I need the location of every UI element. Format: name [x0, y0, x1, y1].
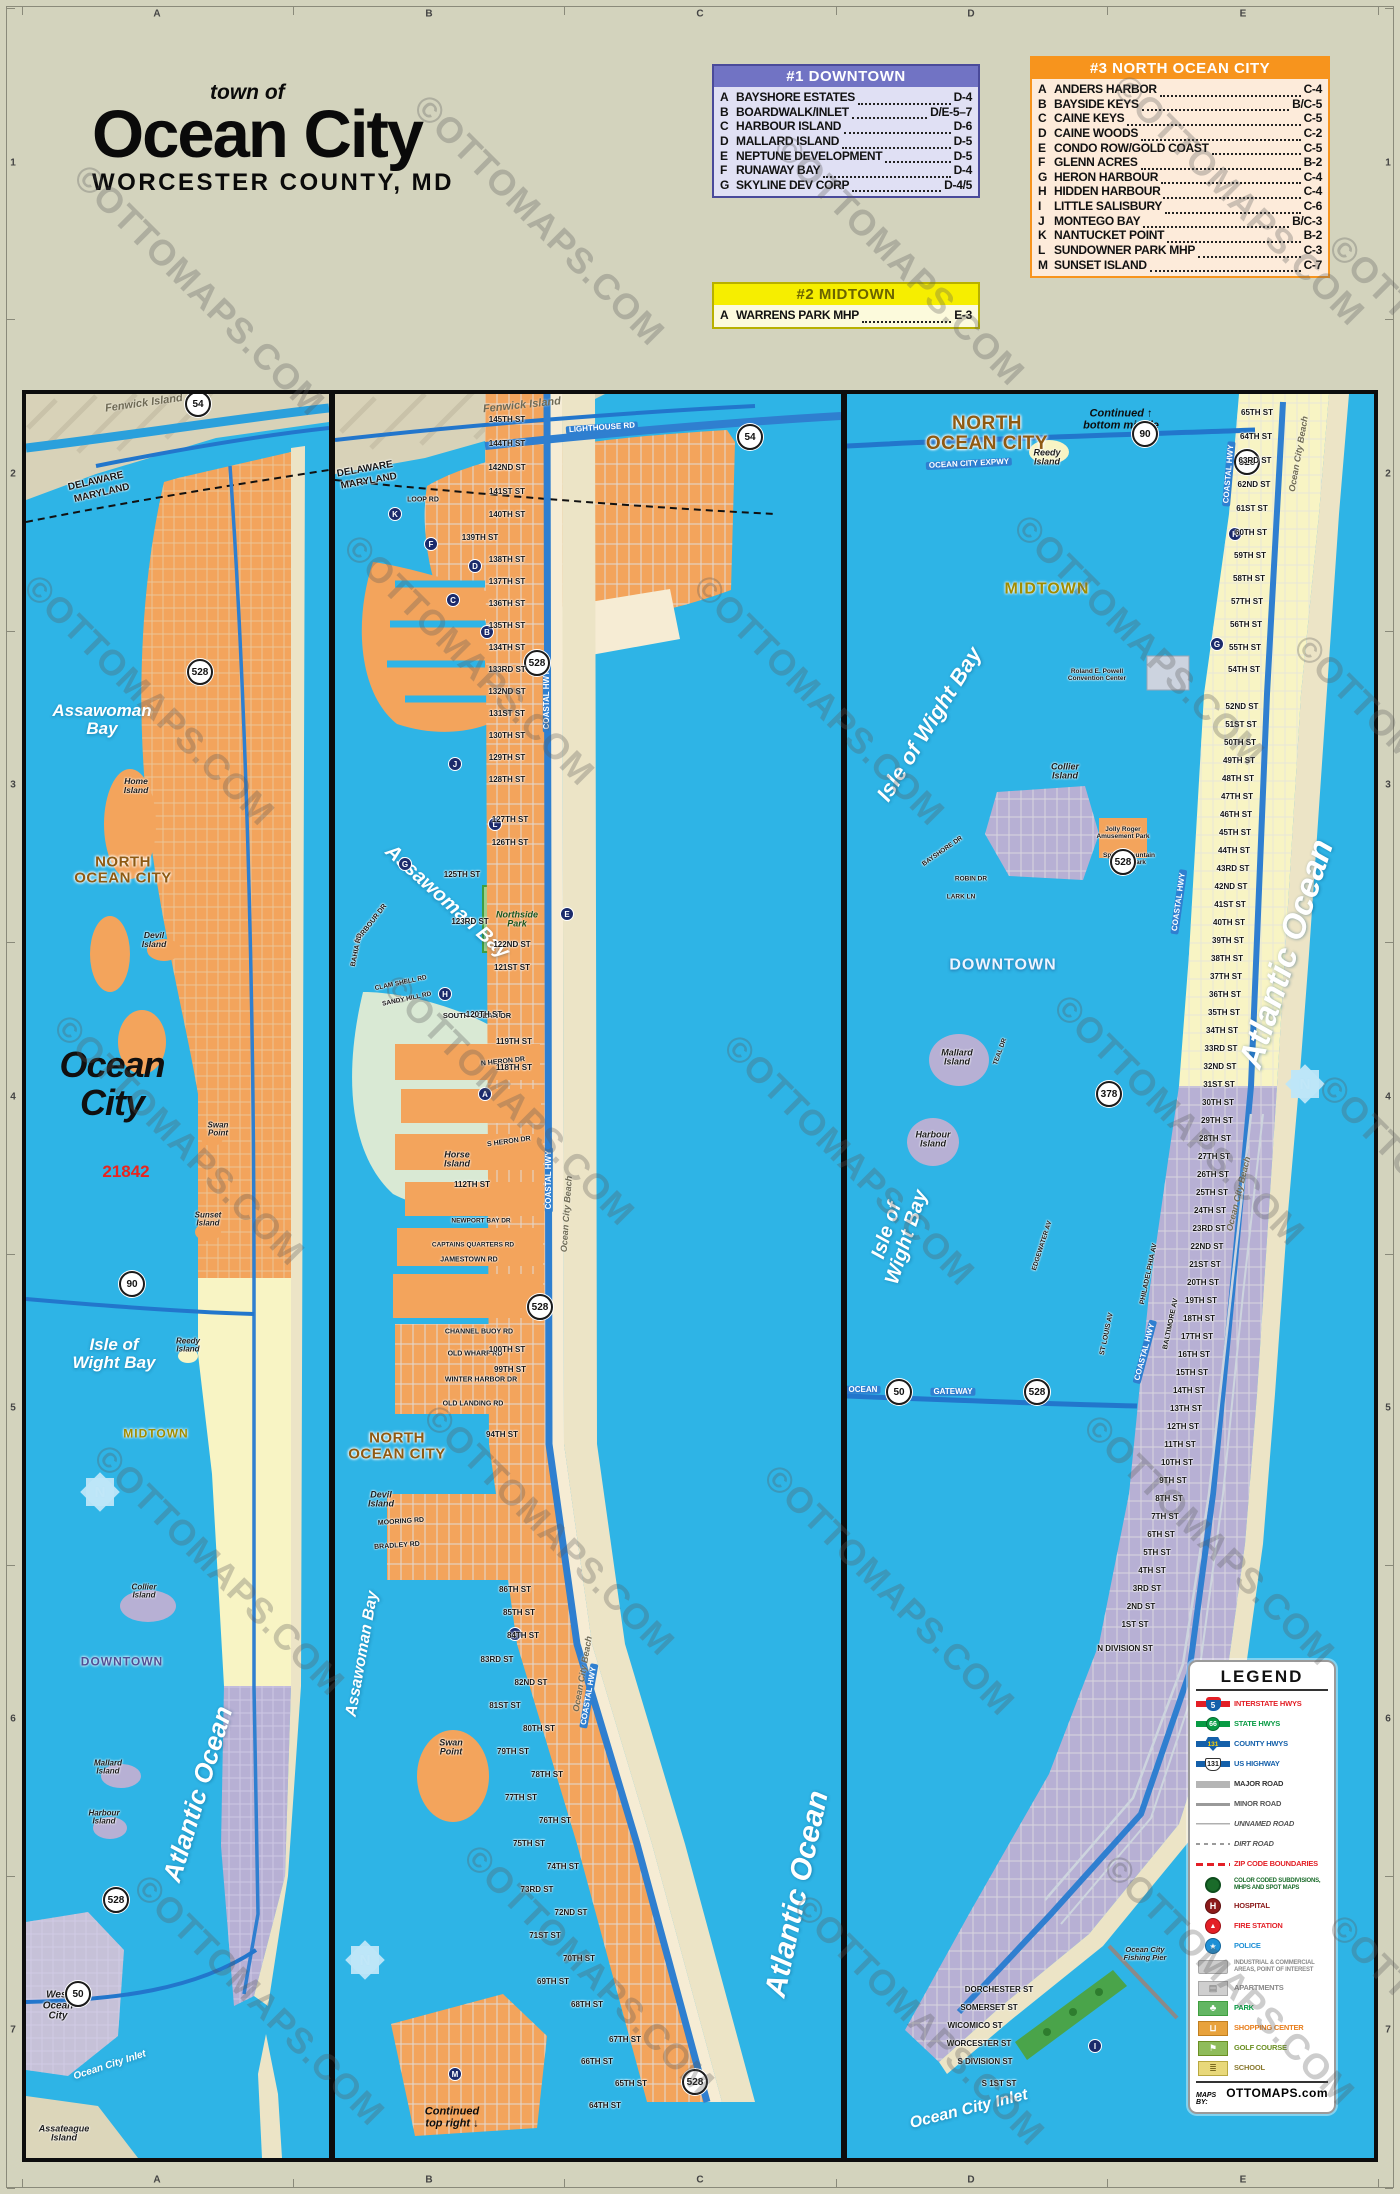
index-row-key: B — [1038, 97, 1054, 112]
leader-dots — [862, 314, 951, 323]
index-row: KNANTUCKET POINTB-2 — [1038, 228, 1322, 243]
ruler-tick — [7, 8, 15, 9]
leader-dots — [823, 169, 950, 178]
ruler-row-4: 4 — [10, 1092, 16, 1103]
index-row: GSKYLINE DEV CORPD-4/5 — [720, 178, 972, 193]
map-label: PHILADELPHIA AV — [1139, 1243, 1159, 1306]
map-label: 40TH ST — [1213, 919, 1245, 927]
map-label: Ocean City Beach — [1225, 1156, 1253, 1233]
compass-north-label: N — [77, 1469, 123, 1515]
index-row-key: H — [1038, 184, 1054, 199]
map-label: GATEWAY — [930, 1388, 975, 1396]
map-label: 86TH ST — [499, 1586, 531, 1594]
map-label: 135TH ST — [489, 622, 525, 630]
map-label: WICOMICO ST — [947, 2022, 1002, 2030]
map-label: 128TH ST — [489, 776, 525, 784]
subdivision-marker-G: G — [1210, 637, 1224, 651]
ruler-tick — [1107, 7, 1108, 15]
index-row-grid-ref: D/E-5–7 — [930, 105, 972, 120]
ruler-col-E: E — [1240, 2175, 1247, 2186]
map-label: 21ST ST — [1189, 1261, 1221, 1269]
map-label: 34TH ST — [1206, 1027, 1238, 1035]
map-label: 27TH ST — [1198, 1153, 1230, 1161]
map-label: 9TH ST — [1159, 1477, 1187, 1485]
map-label: 17TH ST — [1181, 1333, 1213, 1341]
map-label: NORTH OCEAN CITY — [348, 1430, 446, 1462]
map-label: 13TH ST — [1170, 1405, 1202, 1413]
map-label: 61ST ST — [1236, 505, 1268, 513]
subdivision-marker-B: B — [480, 625, 494, 639]
map-label: MIDTOWN — [1005, 582, 1090, 599]
golf-icon — [1196, 2040, 1230, 2056]
leader-dots — [858, 96, 951, 105]
state-icon: 66 — [1196, 1716, 1230, 1732]
map-label: S DIVISION ST — [957, 2058, 1012, 2066]
map-label: 28TH ST — [1199, 1135, 1231, 1143]
leader-dots — [1143, 219, 1289, 228]
ruler-tick — [564, 7, 565, 15]
ruler-col-E: E — [1240, 9, 1247, 20]
leader-dots — [1198, 249, 1301, 258]
dirt-icon — [1196, 1836, 1230, 1852]
index-row-key: M — [1038, 258, 1054, 273]
map-label: 39TH ST — [1212, 937, 1244, 945]
legend-footer: MAPS BY: OTTOMAPS.com — [1196, 2081, 1328, 2106]
subdiv-icon — [1196, 1877, 1230, 1893]
subdivision-marker-D: D — [468, 559, 482, 573]
index-row: GHERON HARBOURC-4 — [1038, 170, 1322, 185]
ruler-tick — [1385, 8, 1393, 9]
map-label: 12TH ST — [1167, 1423, 1199, 1431]
map-label: NEWPORT BAY DR — [451, 1219, 510, 1226]
map-label: Isle of Wight Bay — [872, 643, 985, 805]
map-label: 119TH ST — [496, 1038, 532, 1046]
map-label: 131ST ST — [489, 710, 525, 718]
map-label: 10TH ST — [1161, 1459, 1193, 1467]
compass-rose-icon: N — [1282, 1061, 1328, 1107]
map-label: 78TH ST — [531, 1771, 563, 1779]
title-block: town of Ocean City WORCESTER COUNTY, MD — [92, 84, 472, 197]
index-row-key: D — [1038, 126, 1054, 141]
county-icon: 131 — [1196, 1736, 1230, 1752]
map-label: 51ST ST — [1225, 721, 1257, 729]
map-label: MARYLAND — [340, 472, 398, 492]
ruler-tick — [1385, 631, 1393, 632]
subdivision-marker-F: F — [424, 537, 438, 551]
ruler-tick — [22, 7, 23, 15]
legend-item-minor: MINOR ROAD — [1196, 1794, 1328, 1814]
ruler-tick — [1378, 2179, 1379, 2187]
index-row-name: CAINE KEYS — [1054, 111, 1124, 126]
park-icon — [1196, 2000, 1230, 2016]
map-label: 77TH ST — [505, 1794, 537, 1802]
map-label: Devil Island — [368, 1491, 394, 1510]
legend-item-label: STATE HWYS — [1234, 1720, 1280, 1728]
map-label: 144TH ST — [489, 440, 525, 448]
map-label: OLD LANDING RD — [443, 1400, 504, 1407]
interstate-icon: 5 — [1196, 1696, 1230, 1712]
ruler-tick — [7, 1565, 15, 1566]
ruler-row-4: 4 — [1385, 1092, 1391, 1103]
index-row: BBAYSIDE KEYSB/C-5 — [1038, 97, 1322, 112]
map-label: Isle of Wight Bay — [862, 1181, 932, 1287]
ruler-row-3: 3 — [10, 780, 16, 791]
index-row-key: F — [720, 163, 736, 178]
map-label: 80TH ST — [523, 1725, 555, 1733]
route-shield-528: 528 — [187, 659, 213, 685]
subdivision-marker-H: H — [1228, 527, 1242, 541]
index-row-grid-ref: C-4 — [1304, 82, 1322, 97]
map-label: BAHIA RD — [350, 933, 364, 968]
zip-icon — [1196, 1856, 1230, 1872]
ruler-tick — [7, 1876, 15, 1877]
index-row: DMALLARD ISLANDD-5 — [720, 134, 972, 149]
map-label: 94TH ST — [486, 1431, 518, 1439]
map-label: COASTAL HWY — [543, 668, 551, 733]
ruler-tick — [7, 631, 15, 632]
subdivision-marker-M: M — [448, 2067, 462, 2081]
index-row-name: MONTEGO BAY — [1054, 214, 1140, 229]
index-row: DCAINE WOODSC-2 — [1038, 126, 1322, 141]
legend-item-label: APARTMENTS — [1234, 1984, 1284, 1992]
map-label: ST LOUIS AV — [1099, 1312, 1115, 1356]
map-label: 35TH ST — [1208, 1009, 1240, 1017]
index-table-north-ocean-city: #3 NORTH OCEAN CITYAANDERS HARBORC-4BBAY… — [1030, 56, 1330, 278]
index-row: FRUNAWAY BAYD-4 — [720, 163, 972, 178]
route-shield-54: 54 — [185, 394, 211, 417]
map-label: Collier Island — [132, 1584, 157, 1601]
leader-dots — [1150, 263, 1301, 272]
map-label: Fenwick Island — [482, 396, 561, 416]
ruler-tick — [7, 1254, 15, 1255]
index-row-key: J — [1038, 214, 1054, 229]
index-row-grid-ref: B-2 — [1304, 155, 1322, 170]
index-row-name: ANDERS HARBOR — [1054, 82, 1157, 97]
map-label: Assateague Island — [39, 2125, 90, 2144]
legend-item-unnamed: UNNAMED ROAD — [1196, 1814, 1328, 1834]
map-label: 81ST ST — [489, 1702, 521, 1710]
index-row-grid-ref: D-5 — [954, 149, 972, 164]
index-row-name: BAYSIDE KEYS — [1054, 97, 1139, 112]
state-shield-number: 66 — [1206, 1717, 1220, 1731]
map-label: 18TH ST — [1183, 1315, 1215, 1323]
route-shield-378: 378 — [1096, 1081, 1122, 1107]
map-label: 19TH ST — [1185, 1297, 1217, 1305]
map-label: 31ST ST — [1203, 1081, 1235, 1089]
map-label: SOUTH OCEAN DR — [443, 1012, 511, 1020]
map-label: 38TH ST — [1211, 955, 1243, 963]
route-shield-528: 528 — [524, 650, 550, 676]
map-label: Assawoman Bay — [344, 1590, 383, 1718]
map-label: Sunset Island — [195, 1212, 222, 1229]
map-label: SANDY HILL RD — [382, 991, 432, 1008]
index-row-name: RUNAWAY BAY — [736, 163, 820, 178]
map-label: 57TH ST — [1231, 598, 1263, 606]
ruler-col-A: A — [153, 9, 160, 20]
legend-item-fire: FIRE STATION — [1196, 1916, 1328, 1936]
map-label: 15TH ST — [1176, 1369, 1208, 1377]
index-row-grid-ref: D-4 — [954, 163, 972, 178]
index-row-key: F — [1038, 155, 1054, 170]
index-table-body: AWARRENS PARK MHPE-3 — [714, 305, 978, 327]
map-label: Ocean City Fishing Pier — [1124, 1946, 1167, 1962]
map-label: 58TH ST — [1233, 575, 1265, 583]
route-shield-90: 90 — [119, 1271, 145, 1297]
index-row: JMONTEGO BAYB/C-3 — [1038, 214, 1322, 229]
map-label: 7TH ST — [1151, 1513, 1179, 1521]
leader-dots — [842, 140, 950, 149]
map-label: 36TH ST — [1209, 991, 1241, 999]
map-label: 65TH ST — [1241, 409, 1273, 417]
map-label: MIDTOWN — [123, 1428, 188, 1441]
interstate-shield-number: 5 — [1206, 1697, 1221, 1711]
index-row-key: D — [720, 134, 736, 149]
subdivision-marker-H: H — [438, 987, 452, 1001]
map-legend: LEGEND 5INTERSTATE HWYS66STATE HWYS131CO… — [1188, 1660, 1336, 2114]
index-row-name: SUNSET ISLAND — [1054, 258, 1147, 273]
us-shield-number: 131 — [1205, 1758, 1221, 1771]
map-label: 79TH ST — [497, 1748, 529, 1756]
map-label: 5TH ST — [1143, 1549, 1171, 1557]
map-area: Fenwick IslandDELAWAREMARYLANDAssawoman … — [22, 390, 1378, 2162]
legend-item-label: POLICE — [1234, 1942, 1261, 1950]
legend-item-label: COLOR CODED SUBDIVISIONS, MHPS AND SPOT … — [1234, 1878, 1320, 1891]
map-label: Isle of Wight Bay — [73, 1336, 156, 1372]
map-label: Ocean City — [59, 1046, 164, 1122]
map-label: 37TH ST — [1210, 973, 1242, 981]
legend-footer-pre: MAPS BY: — [1196, 2092, 1223, 2106]
index-row-name: HERON HARBOUR — [1054, 170, 1158, 185]
map-label: 67TH ST — [609, 2036, 641, 2044]
map-sheet: town of Ocean City WORCESTER COUNTY, MD … — [0, 0, 1400, 2194]
ruler-tick — [1385, 1876, 1393, 1877]
map-label: WINTER HARBOR DR — [445, 1376, 517, 1383]
map-label: Atlantic Ocean — [158, 1703, 237, 1885]
index-row-grid-ref: C-7 — [1304, 258, 1322, 273]
ruler-tick — [293, 2179, 294, 2187]
ruler-tick — [1385, 1254, 1393, 1255]
map-label: 74TH ST — [547, 1863, 579, 1871]
map-label: 85TH ST — [503, 1609, 535, 1617]
map-label: Horse Island — [444, 1151, 470, 1170]
legend-item-label: SCHOOL — [1234, 2064, 1265, 2072]
map-label: Swan Point — [208, 1122, 229, 1139]
index-row: MSUNSET ISLANDC-7 — [1038, 258, 1322, 273]
minor-icon — [1196, 1796, 1230, 1812]
map-label: 112TH ST — [454, 1181, 490, 1189]
legend-item-label: ZIP CODE BOUNDARIES — [1234, 1860, 1318, 1868]
ruler-col-B: B — [425, 9, 432, 20]
map-label: 46TH ST — [1220, 811, 1252, 819]
map-label: 82ND ST — [515, 1679, 548, 1687]
map-label: 54TH ST — [1228, 666, 1260, 674]
map-label: Ocean City Inlet — [908, 2087, 1029, 2133]
ruler-col-C: C — [696, 9, 703, 20]
ruler-tick — [7, 2188, 15, 2189]
index-row-key: B — [720, 105, 736, 120]
ruler-row-3: 3 — [1385, 780, 1391, 791]
map-label: 130TH ST — [489, 732, 525, 740]
ruler-row-2: 2 — [10, 469, 16, 480]
legend-item-label: MINOR ROAD — [1234, 1800, 1281, 1808]
index-row-grid-ref: C-4 — [1304, 184, 1322, 199]
ruler-col-D: D — [967, 2175, 974, 2186]
unnamed-icon — [1196, 1816, 1230, 1832]
map-label: 118TH ST — [496, 1064, 532, 1072]
map-label: N HERON DR — [481, 1056, 526, 1068]
index-row-name: SUNDOWNER PARK MHP — [1054, 243, 1195, 258]
legend-footer-brand: OTTOMAPS.com — [1226, 2086, 1328, 2100]
ruler-row-2: 2 — [1385, 469, 1391, 480]
map-label: 134TH ST — [489, 644, 525, 652]
ruler-col-B: B — [425, 2175, 432, 2186]
legend-item-label: US HIGHWAY — [1234, 1760, 1280, 1768]
index-row: ABAYSHORE ESTATESD-4 — [720, 90, 972, 105]
ruler-tick — [836, 2179, 837, 2187]
title-sub: WORCESTER COUNTY, MD — [92, 169, 472, 197]
map-label: SOMERSET ST — [960, 2004, 1017, 2012]
map-label: 121ST ST — [494, 964, 530, 972]
ruler-row-7: 7 — [10, 2025, 16, 2036]
leader-dots — [1141, 132, 1301, 141]
map-label: Harbour Island — [88, 1810, 119, 1827]
index-table-title: #3 NORTH OCEAN CITY — [1032, 58, 1328, 79]
map-label: 4TH ST — [1138, 1567, 1166, 1575]
legend-item-major: MAJOR ROAD — [1196, 1774, 1328, 1794]
index-row-grid-ref: C-3 — [1304, 243, 1322, 258]
index-table-body: AANDERS HARBORC-4BBAYSIDE KEYSB/C-5CCAIN… — [1032, 79, 1328, 276]
map-label: Jolly Roger Amusement Park — [1096, 827, 1149, 841]
leader-dots — [885, 154, 950, 163]
map-label: EDGEWATER AV — [1032, 1220, 1054, 1271]
map-label: 137TH ST — [489, 578, 525, 586]
map-label: Mallard Island — [941, 1049, 973, 1068]
us-icon: 131 — [1196, 1756, 1230, 1772]
index-row-key: A — [720, 90, 736, 105]
legend-item-label: GOLF COURSE — [1234, 2044, 1287, 2052]
legend-item-state: 66STATE HWYS — [1196, 1714, 1328, 1734]
legend-item-label: SHOPPING CENTER — [1234, 2024, 1304, 2032]
map-label: 56TH ST — [1230, 621, 1262, 629]
legend-item-police: POLICE — [1196, 1936, 1328, 1956]
leader-dots — [1127, 117, 1300, 126]
map-label: 141ST ST — [489, 488, 525, 496]
subdivision-marker-I: I — [508, 1627, 522, 1641]
map-label: HARBOUR DR — [353, 903, 388, 945]
map-label: 68TH ST — [571, 2001, 603, 2009]
school-icon — [1196, 2060, 1230, 2076]
leader-dots — [1165, 205, 1300, 214]
legend-item-shopping: SHOPPING CENTER — [1196, 2018, 1328, 2038]
compass-north-label: N — [1282, 1061, 1328, 1107]
route-shield-528: 528 — [1110, 849, 1136, 875]
subdivision-marker-G: G — [398, 857, 412, 871]
index-row: HHIDDEN HARBOURC-4 — [1038, 184, 1322, 199]
subdivision-marker-E: E — [560, 907, 574, 921]
ruler-tick — [1385, 319, 1393, 320]
subdivision-marker-L: L — [488, 817, 502, 831]
map-label: DELAWARE — [67, 471, 125, 494]
map-label: 66TH ST — [581, 2058, 613, 2066]
map-label: 132ND ST — [488, 688, 525, 696]
map-label: BAYSHORE DR — [922, 836, 965, 869]
map-label: Ocean City Beach — [1288, 415, 1311, 492]
map-label: Collier Island — [1051, 763, 1079, 782]
ruler-tick — [22, 2179, 23, 2187]
index-row: CCAINE KEYSC-5 — [1038, 111, 1322, 126]
map-label: 62ND ST — [1238, 481, 1271, 489]
compass-north-label: N — [342, 1937, 388, 1983]
map-label: 140TH ST — [489, 511, 525, 519]
police-icon — [1196, 1938, 1230, 1954]
map-label: 71ST ST — [529, 1932, 561, 1940]
map-label: Continued top right ↓ — [425, 2106, 479, 2129]
ruler-row-5: 5 — [10, 1403, 16, 1414]
map-label: Roland E. Powell Convention Center — [1068, 669, 1126, 683]
index-row: AWARRENS PARK MHPE-3 — [720, 308, 972, 323]
map-label: 139TH ST — [462, 534, 498, 542]
map-label: 72ND ST — [555, 1909, 588, 1917]
hospital-icon — [1196, 1898, 1230, 1914]
map-label: LIGHTHOUSE RD — [566, 421, 639, 434]
leader-dots — [852, 110, 927, 119]
map-label: JAMESTOWN RD — [440, 1256, 497, 1263]
map-label: 2ND ST — [1127, 1603, 1155, 1611]
map-label: 24TH ST — [1194, 1207, 1226, 1215]
map-label: 73RD ST — [521, 1886, 554, 1894]
compass-rose-icon: N — [342, 1937, 388, 1983]
index-row-key: E — [1038, 141, 1054, 156]
map-label: 43RD ST — [1217, 865, 1250, 873]
ruler-tick — [7, 319, 15, 320]
map-label: 83RD ST — [481, 1656, 514, 1664]
legend-item-school: SCHOOL — [1196, 2058, 1328, 2078]
ruler-tick — [1385, 942, 1393, 943]
legend-item-label: PARK — [1234, 2004, 1254, 2012]
legend-item-industrial: INDUSTRIAL & COMMERCIAL AREAS, POINT OF … — [1196, 1956, 1328, 1978]
map-label: Assawoman Bay — [52, 702, 151, 738]
legend-item-park: PARK — [1196, 1998, 1328, 2018]
ruler-tick — [1378, 7, 1379, 15]
legend-item-interstate: 5INTERSTATE HWYS — [1196, 1694, 1328, 1714]
map-label: S HERON DR — [487, 1135, 532, 1148]
index-table-midtown: #2 MIDTOWNAWARRENS PARK MHPE-3 — [712, 282, 980, 329]
subdivision-marker-A: A — [478, 1087, 492, 1101]
ruler-row-5: 5 — [1385, 1403, 1391, 1414]
map-label: TEAL DR — [993, 1038, 1009, 1067]
map-label: CLAM SHELL RD — [374, 975, 427, 993]
leader-dots — [1167, 234, 1300, 243]
index-row-grid-ref: B/C-3 — [1292, 214, 1322, 229]
index-row-key: E — [720, 149, 736, 164]
index-row-key: G — [1038, 170, 1054, 185]
map-label: 44TH ST — [1218, 847, 1250, 855]
map-label: 20TH ST — [1187, 1279, 1219, 1287]
map-label: 123RD ST — [451, 918, 488, 926]
route-shield-50: 50 — [65, 1981, 91, 2007]
subdivision-marker-C: C — [446, 593, 460, 607]
ruler-col-D: D — [967, 9, 974, 20]
map-label: 122ND ST — [493, 941, 530, 949]
map-label: COASTAL HWY — [1170, 869, 1187, 934]
map-label: Fenwick Island — [104, 394, 183, 415]
index-row-grid-ref: E-3 — [954, 308, 972, 323]
map-label: 70TH ST — [563, 1955, 595, 1963]
map-label: N DIVISION ST — [1097, 1645, 1153, 1653]
map-label: 48TH ST — [1222, 775, 1254, 783]
map-label: 11TH ST — [1164, 1441, 1196, 1449]
map-label: COASTAL HWY — [1133, 1320, 1158, 1385]
